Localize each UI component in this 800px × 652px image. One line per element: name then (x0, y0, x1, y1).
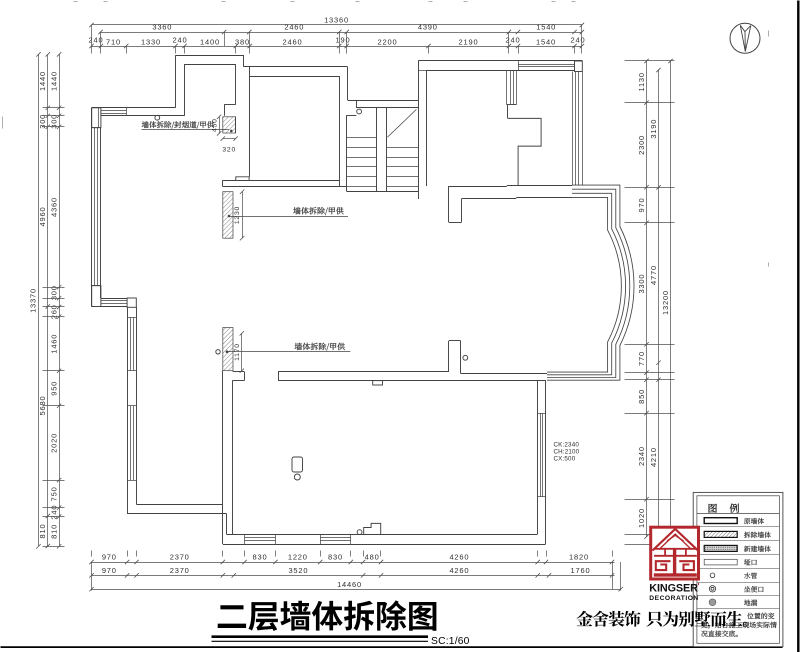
svg-text:2370: 2370 (170, 553, 190, 562)
svg-text:1170: 1170 (234, 343, 241, 361)
svg-text:1330: 1330 (141, 38, 161, 47)
svg-text:810: 810 (38, 524, 47, 539)
svg-text:240: 240 (173, 35, 188, 44)
svg-text:1400: 1400 (200, 38, 220, 47)
svg-text:750: 750 (49, 486, 58, 501)
svg-text:1820: 1820 (569, 553, 589, 562)
svg-text:970: 970 (102, 553, 117, 562)
svg-text:4260: 4260 (449, 553, 469, 562)
svg-text:2190: 2190 (459, 38, 479, 47)
svg-text:3520: 3520 (288, 566, 308, 575)
svg-text:DECORATION: DECORATION (649, 595, 698, 602)
svg-text:770: 770 (637, 351, 646, 366)
svg-text:480: 480 (365, 553, 380, 562)
svg-text:': ' (698, 581, 700, 591)
svg-text:1220: 1220 (288, 553, 308, 562)
svg-text:710: 710 (106, 38, 121, 47)
svg-text:2020: 2020 (49, 433, 58, 453)
svg-text:1460: 1460 (49, 334, 58, 354)
svg-text:850: 850 (637, 389, 646, 404)
svg-text:13360: 13360 (324, 16, 349, 25)
svg-text:4260: 4260 (449, 566, 469, 575)
svg-text:CK:2340: CK:2340 (554, 442, 580, 449)
svg-text:2460: 2460 (284, 23, 304, 32)
svg-text:1760: 1760 (571, 566, 591, 575)
svg-text:SC:1/60: SC:1/60 (431, 636, 470, 647)
svg-text:450: 450 (212, 118, 219, 132)
svg-text:1230: 1230 (234, 206, 241, 224)
svg-text:4360: 4360 (49, 197, 58, 217)
svg-text:2340: 2340 (637, 446, 646, 466)
svg-text:1020: 1020 (637, 508, 646, 528)
svg-text:810: 810 (49, 524, 58, 539)
svg-text:240: 240 (571, 35, 586, 44)
svg-text:320: 320 (222, 146, 236, 153)
svg-text:3360: 3360 (152, 23, 172, 32)
svg-text:4770: 4770 (649, 265, 658, 285)
svg-text:2200: 2200 (378, 38, 398, 47)
svg-text:13200: 13200 (661, 290, 670, 315)
svg-text:380: 380 (235, 38, 250, 47)
svg-text:1440: 1440 (38, 71, 47, 91)
svg-text:1540: 1540 (536, 23, 556, 32)
svg-text:CX:500: CX:500 (554, 456, 576, 463)
svg-text:14460: 14460 (337, 580, 362, 589)
svg-text:950: 950 (49, 381, 58, 396)
svg-text:KINGSER: KINGSER (649, 583, 698, 595)
svg-text:240: 240 (506, 35, 521, 44)
svg-text:4210: 4210 (649, 447, 658, 467)
svg-text:2460: 2460 (283, 38, 303, 47)
svg-text:4390: 4390 (418, 23, 438, 32)
svg-text:2370: 2370 (170, 566, 190, 575)
svg-text:970: 970 (637, 198, 646, 213)
svg-text:4960: 4960 (38, 207, 47, 227)
svg-text:1440: 1440 (49, 71, 58, 91)
svg-text:2300: 2300 (637, 135, 646, 155)
svg-text:830: 830 (328, 553, 343, 562)
svg-text:3300: 3300 (637, 274, 646, 294)
svg-text:970: 970 (102, 566, 117, 575)
svg-text:1540: 1540 (536, 38, 556, 47)
svg-text:3190: 3190 (649, 119, 658, 139)
svg-text:CH:2100: CH:2100 (554, 449, 580, 456)
svg-text:190: 190 (336, 35, 351, 44)
svg-text:830: 830 (253, 553, 268, 562)
svg-text:13370: 13370 (29, 288, 38, 313)
svg-text:240: 240 (49, 505, 58, 520)
svg-text:240: 240 (89, 35, 104, 44)
svg-text:1130: 1130 (637, 72, 646, 91)
